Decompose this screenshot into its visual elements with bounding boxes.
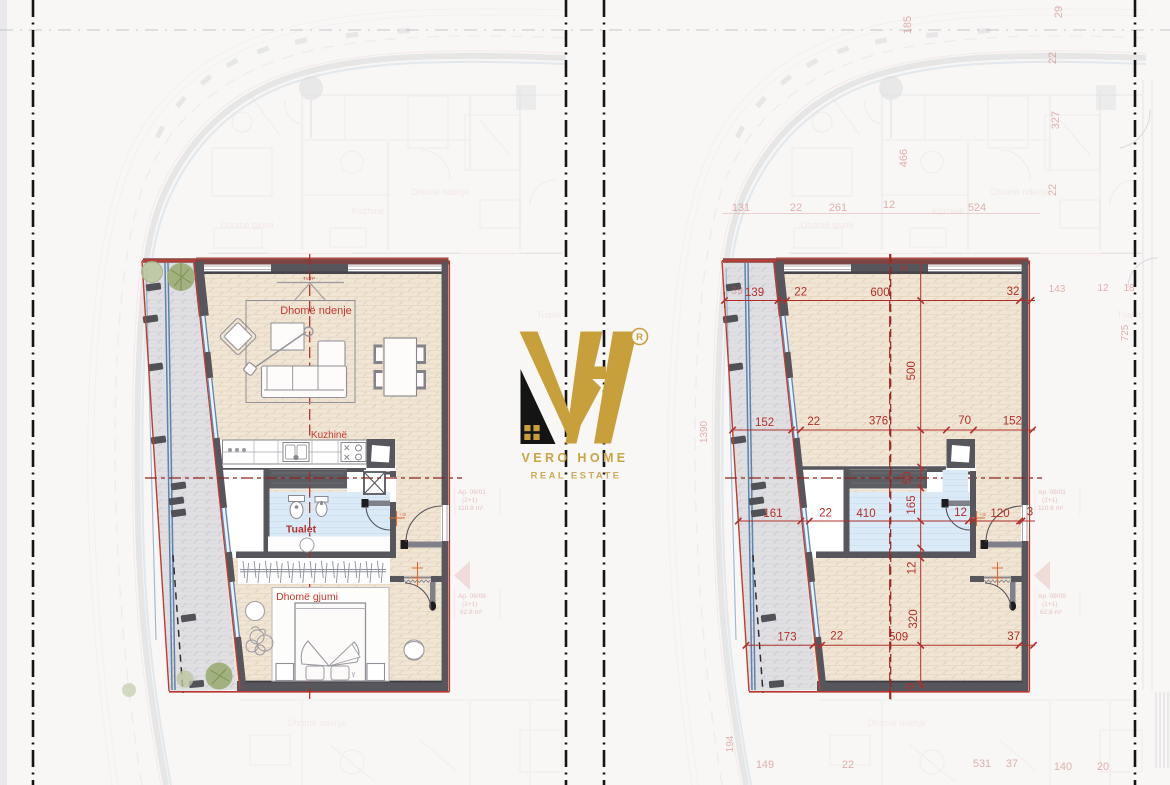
svg-text:(2+1): (2+1) — [1042, 497, 1057, 504]
svg-text:725: 725 — [1120, 324, 1131, 341]
svg-text:Kuzhinë: Kuzhinë — [932, 206, 965, 216]
svg-text:140: 140 — [1054, 761, 1072, 773]
svg-text:(2+1): (2+1) — [462, 497, 477, 504]
svg-text:165: 165 — [906, 495, 918, 514]
svg-text:5: 5 — [900, 265, 911, 271]
svg-text:531: 531 — [973, 758, 991, 770]
svg-text:TV.TP: TV.TP — [303, 276, 315, 281]
svg-text:Dhomë ndenje: Dhomë ndenje — [991, 187, 1050, 197]
svg-text:22: 22 — [830, 631, 843, 643]
svg-text:+45: +45 — [399, 512, 407, 517]
svg-text:22: 22 — [819, 508, 832, 520]
svg-text:Ap. 09/08: Ap. 09/08 — [458, 593, 486, 600]
svg-text:500: 500 — [906, 361, 918, 380]
svg-text:37: 37 — [1006, 758, 1018, 770]
svg-text:18: 18 — [1123, 283, 1135, 294]
svg-text:152: 152 — [1003, 416, 1022, 428]
svg-text:3: 3 — [1027, 507, 1033, 519]
svg-text:110.8 m²: 110.8 m² — [1038, 505, 1064, 512]
svg-text:22: 22 — [1047, 184, 1059, 196]
svg-text:REAL ESTATE: REAL ESTATE — [531, 471, 622, 482]
svg-text:320: 320 — [908, 609, 920, 628]
svg-text:12: 12 — [907, 562, 919, 575]
svg-text:R: R — [636, 332, 643, 343]
svg-text:22: 22 — [807, 416, 820, 428]
svg-text:22: 22 — [842, 759, 854, 771]
svg-text:Tualet: Tualet — [537, 310, 562, 320]
svg-text:Dhomë ndenje: Dhomë ndenje — [411, 187, 470, 197]
svg-text:194: 194 — [725, 735, 736, 752]
svg-text:327: 327 — [1050, 111, 1062, 129]
svg-text:161: 161 — [763, 508, 782, 520]
svg-text:Ap. 09/01: Ap. 09/01 — [1038, 489, 1066, 496]
svg-text:376: 376 — [869, 416, 888, 428]
svg-text:20: 20 — [1097, 761, 1109, 773]
svg-text:1390: 1390 — [699, 420, 710, 443]
svg-text:12: 12 — [1097, 283, 1109, 294]
svg-text:173: 173 — [777, 632, 796, 644]
svg-text:22: 22 — [794, 287, 807, 299]
svg-text:Ap. 09/09: Ap. 09/09 — [1038, 593, 1066, 600]
svg-text:62.8 m²: 62.8 m² — [460, 609, 483, 616]
svg-text:261: 261 — [829, 202, 847, 214]
svg-text:22: 22 — [1047, 52, 1059, 64]
svg-text:Dhomë gjumi: Dhomë gjumi — [800, 220, 853, 230]
svg-text:(1+1): (1+1) — [462, 601, 477, 608]
svg-text:185: 185 — [902, 16, 914, 34]
svg-text:VERO HOME: VERO HOME — [522, 451, 629, 465]
svg-text:22: 22 — [790, 202, 802, 214]
svg-text:466: 466 — [898, 149, 910, 167]
svg-text:139: 139 — [745, 287, 764, 299]
svg-text:Kuzhinë: Kuzhinë — [352, 206, 385, 216]
svg-text:37: 37 — [1007, 631, 1020, 643]
svg-text:Dhomë ndenje: Dhomë ndenje — [280, 305, 352, 317]
svg-text:Dhomë ndenje: Dhomë ndenje — [288, 718, 347, 728]
svg-text:Tualet: Tualet — [1117, 310, 1142, 320]
svg-text:62.8 m²: 62.8 m² — [1040, 609, 1063, 616]
svg-text:410: 410 — [856, 508, 875, 520]
svg-text:120: 120 — [990, 508, 1009, 520]
svg-text:143: 143 — [1049, 284, 1066, 295]
svg-text:0: 0 — [906, 683, 918, 689]
svg-text:152: 152 — [755, 417, 774, 429]
svg-text:50: 50 — [902, 472, 914, 485]
svg-text:Dhomë ndenje: Dhomë ndenje — [868, 718, 927, 728]
svg-text:Dhomë gjumi: Dhomë gjumi — [276, 591, 338, 603]
svg-text:600: 600 — [870, 287, 889, 299]
svg-text:Tualet: Tualet — [286, 524, 317, 536]
svg-text:149: 149 — [756, 759, 774, 771]
svg-text:Dhomë gjumi: Dhomë gjumi — [220, 220, 273, 230]
svg-text:(1+1): (1+1) — [1042, 601, 1057, 608]
svg-text:12: 12 — [954, 507, 967, 519]
svg-text:70: 70 — [958, 415, 971, 427]
svg-text:32: 32 — [1007, 286, 1020, 298]
svg-text:29: 29 — [1053, 6, 1065, 18]
svg-text:131: 131 — [732, 202, 750, 214]
svg-text:+45: +45 — [979, 512, 987, 517]
svg-text:39: 39 — [731, 285, 743, 297]
svg-text:110.8 m²: 110.8 m² — [458, 505, 484, 512]
svg-text:509: 509 — [889, 632, 908, 644]
svg-text:524: 524 — [968, 202, 986, 214]
svg-text:Ap. 09/01: Ap. 09/01 — [458, 489, 486, 496]
svg-text:12: 12 — [883, 199, 895, 211]
svg-text:Kuzhinë: Kuzhinë — [311, 430, 348, 441]
